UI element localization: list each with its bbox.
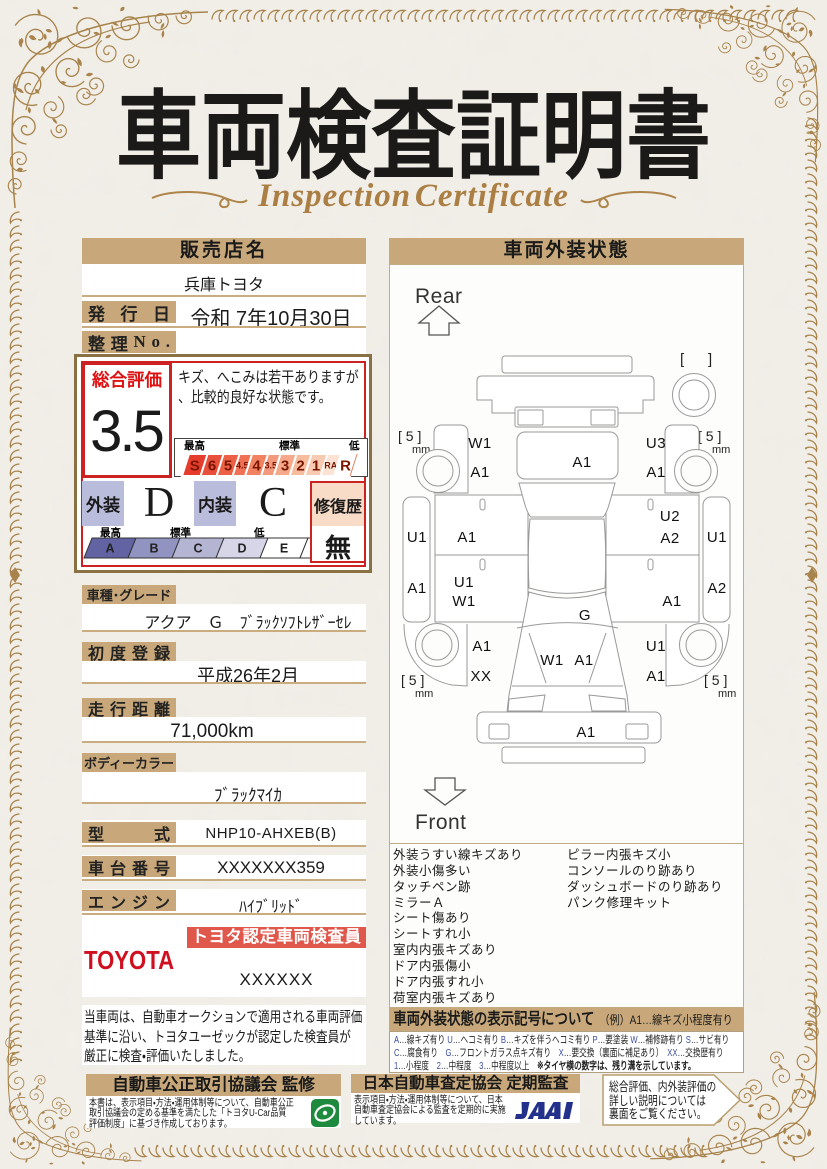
- svg-text:標準: 標準: [170, 526, 191, 539]
- svg-text:B: B: [149, 542, 158, 556]
- svg-text:C: C: [193, 542, 202, 556]
- svg-text:U1: U1: [407, 529, 427, 546]
- svg-text:A1: A1: [472, 638, 491, 655]
- svg-text:mm: mm: [415, 688, 433, 700]
- svg-text:A1: A1: [646, 668, 665, 685]
- svg-text:最高: 最高: [100, 526, 121, 539]
- svg-text:1: 1: [312, 457, 320, 474]
- svg-text:6: 6: [208, 457, 216, 474]
- svg-text:低: 低: [253, 526, 265, 539]
- svg-text:]: ]: [708, 351, 712, 368]
- svg-text:U1: U1: [646, 638, 666, 655]
- svg-text:W1: W1: [540, 652, 564, 669]
- svg-text:[: [: [680, 351, 685, 368]
- svg-text:標準: 標準: [279, 439, 300, 452]
- svg-text:W1: W1: [468, 435, 492, 452]
- svg-text:A1: A1: [572, 454, 591, 471]
- svg-text:[ 5 ]: [ 5 ]: [398, 428, 421, 444]
- svg-text:A1: A1: [662, 593, 681, 610]
- svg-text:[ 5 ]: [ 5 ]: [704, 672, 727, 688]
- svg-text:[ 5 ]: [ 5 ]: [401, 672, 424, 688]
- svg-text:W1: W1: [452, 593, 476, 610]
- svg-text:U1: U1: [707, 529, 727, 546]
- svg-text:R: R: [340, 457, 351, 474]
- svg-text:2: 2: [296, 457, 304, 474]
- svg-text:低: 低: [348, 439, 360, 452]
- svg-text:[ 5 ]: [ 5 ]: [698, 428, 721, 444]
- svg-text:3: 3: [281, 457, 289, 474]
- svg-text:E: E: [280, 542, 288, 556]
- svg-text:A: A: [105, 542, 114, 556]
- svg-text:mm: mm: [718, 688, 736, 700]
- svg-text:最高: 最高: [184, 439, 205, 452]
- svg-text:D: D: [237, 542, 246, 556]
- svg-text:U3: U3: [646, 435, 666, 452]
- svg-text:Front: Front: [415, 811, 467, 834]
- svg-text:A1: A1: [470, 464, 489, 481]
- svg-text:U1: U1: [454, 574, 474, 591]
- svg-text:U2: U2: [660, 508, 680, 525]
- svg-text:G: G: [579, 607, 591, 624]
- svg-text:A1: A1: [576, 724, 595, 741]
- svg-text:A2: A2: [707, 580, 726, 597]
- svg-text:XX: XX: [470, 668, 491, 685]
- svg-text:A1: A1: [407, 580, 426, 597]
- svg-text:mm: mm: [712, 444, 730, 456]
- svg-text:S: S: [190, 457, 200, 474]
- svg-text:A1: A1: [574, 652, 593, 669]
- svg-text:4: 4: [252, 457, 261, 474]
- svg-text:5: 5: [224, 457, 232, 474]
- svg-text:Rear: Rear: [415, 285, 463, 308]
- svg-text:A1: A1: [646, 464, 665, 481]
- svg-text:A2: A2: [660, 530, 679, 547]
- svg-text:A1: A1: [457, 529, 476, 546]
